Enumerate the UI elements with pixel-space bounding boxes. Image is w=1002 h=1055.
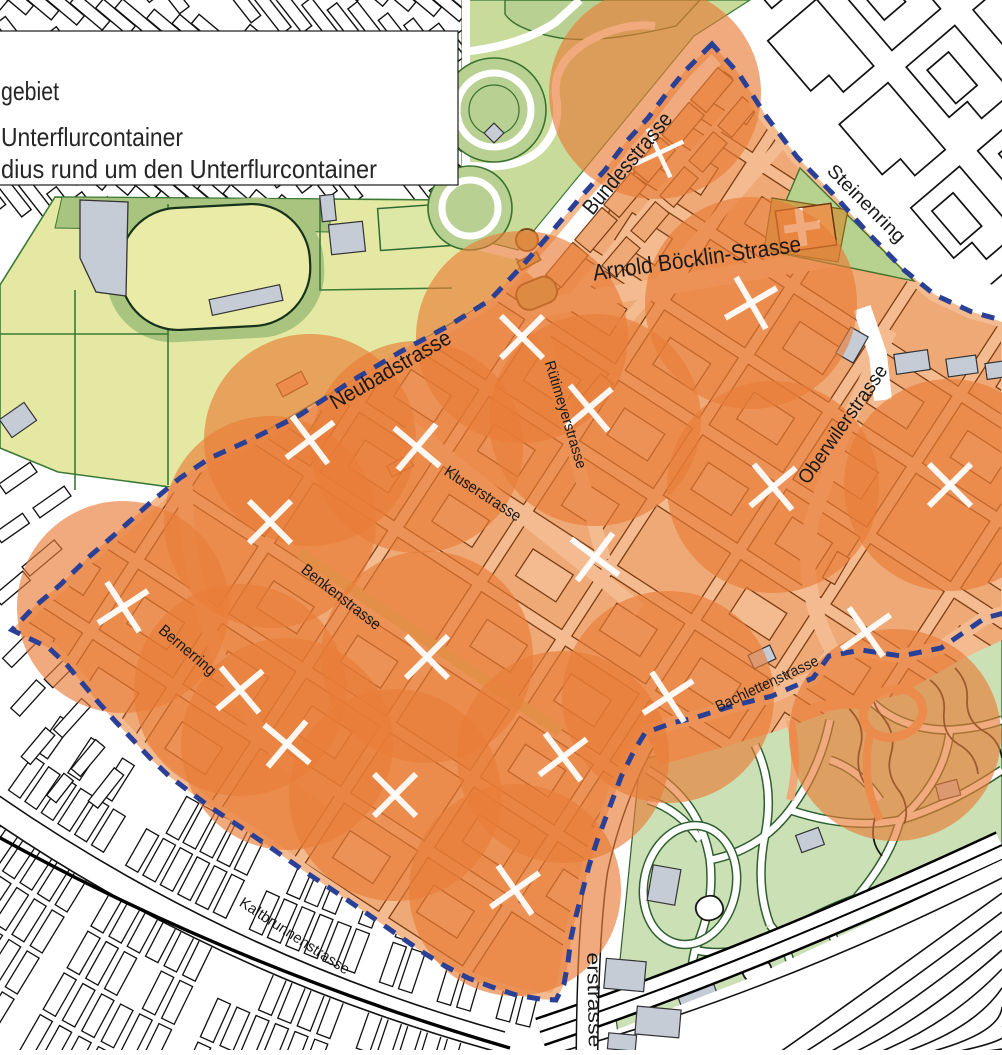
svg-text:gebiet: gebiet [1, 76, 60, 106]
svg-text:Unterflurcontainer: Unterflurcontainer [1, 122, 183, 152]
svg-text:dius rund um den Unterflurcont: dius rund um den Unterflurcontainer [1, 154, 377, 184]
svg-text:erstrasse: erstrasse [582, 952, 605, 1047]
